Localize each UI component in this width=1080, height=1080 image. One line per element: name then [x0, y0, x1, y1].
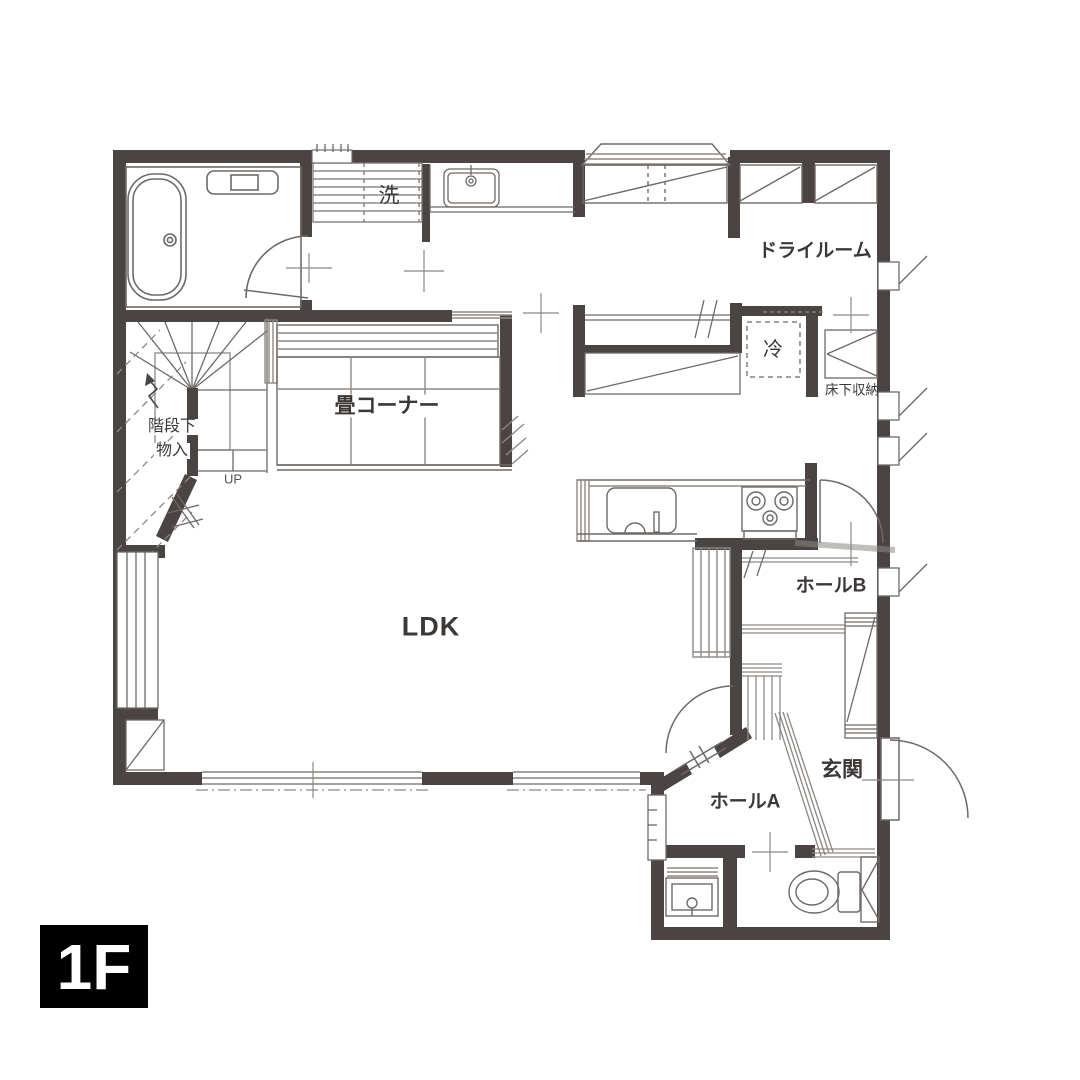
washroom-window: [312, 144, 352, 163]
kitchen-counter-front: [693, 548, 730, 657]
casement-window: [878, 388, 927, 420]
entry-step-bands: [742, 664, 782, 740]
counter-end-hatch: [577, 480, 589, 541]
stairs: [117, 318, 267, 556]
washer-icon: [313, 163, 422, 222]
stove-icon: [742, 487, 797, 539]
ldk-sliding-window: [507, 772, 646, 790]
label-stairs-up: UP: [224, 473, 242, 486]
bathroom-door-arc: [246, 236, 308, 298]
bathroom: [126, 167, 308, 307]
label-under-stairs-1: 階段下: [146, 419, 198, 435]
closet: [815, 165, 877, 203]
tatami-corner: [265, 312, 528, 470]
label-dry-room: ドライルーム: [758, 242, 871, 261]
label-washer: 洗: [379, 186, 400, 207]
kitchen-sink-icon: [607, 488, 676, 533]
closet: [740, 165, 802, 203]
washbasin-icon: [430, 165, 575, 212]
sliding-door-ticks: [695, 300, 717, 338]
bay-window: [582, 144, 730, 165]
label-tatami-corner: 畳コーナー: [332, 395, 443, 418]
ldk-left-window: [117, 552, 158, 708]
shoe-cabinet: [845, 613, 877, 738]
casement-window: [878, 564, 927, 596]
hall-b-step-band: [742, 625, 845, 633]
label-entrance: 玄関: [821, 760, 863, 781]
bathtub-icon: [128, 174, 186, 300]
hall-b-sliding-door: [742, 549, 858, 578]
toilet-storage: [861, 857, 879, 922]
corner-cabinet: [126, 720, 164, 770]
genkan-diagonal-step: [775, 712, 833, 856]
hand-basin-icon: [666, 868, 718, 916]
toilet-room: [666, 857, 879, 922]
label-underfloor-storage: 床下収納: [825, 383, 879, 397]
centerline-marks: [286, 250, 914, 872]
stair-treads: [130, 322, 267, 471]
closet: [583, 165, 727, 203]
label-fridge: 冷: [763, 340, 783, 360]
casement-window: [878, 433, 927, 465]
label-hall-b: ホールB: [796, 577, 867, 596]
stair-arrow-icon: [145, 373, 158, 408]
ldk-sliding-window: [196, 772, 428, 790]
ldk-hall-a-door: [666, 686, 733, 775]
kitchen: [577, 480, 810, 657]
underfloor-storage-box: [825, 330, 877, 378]
toilet-icon: [789, 871, 860, 913]
label-under-stairs-2: 物入: [154, 443, 190, 459]
floor-badge: 1F: [40, 925, 148, 1008]
floorplan-page: LDK 畳コーナー ドライルーム ホールB ホールA 玄関 洗 冷 床下収納 階…: [0, 0, 1080, 1080]
floorplan-drawing: [0, 0, 1080, 1080]
hall-a-window: [648, 795, 666, 860]
label-hall-a: ホールA: [710, 793, 781, 812]
entrance-door: [881, 738, 968, 820]
label-ldk: LDK: [402, 614, 461, 641]
